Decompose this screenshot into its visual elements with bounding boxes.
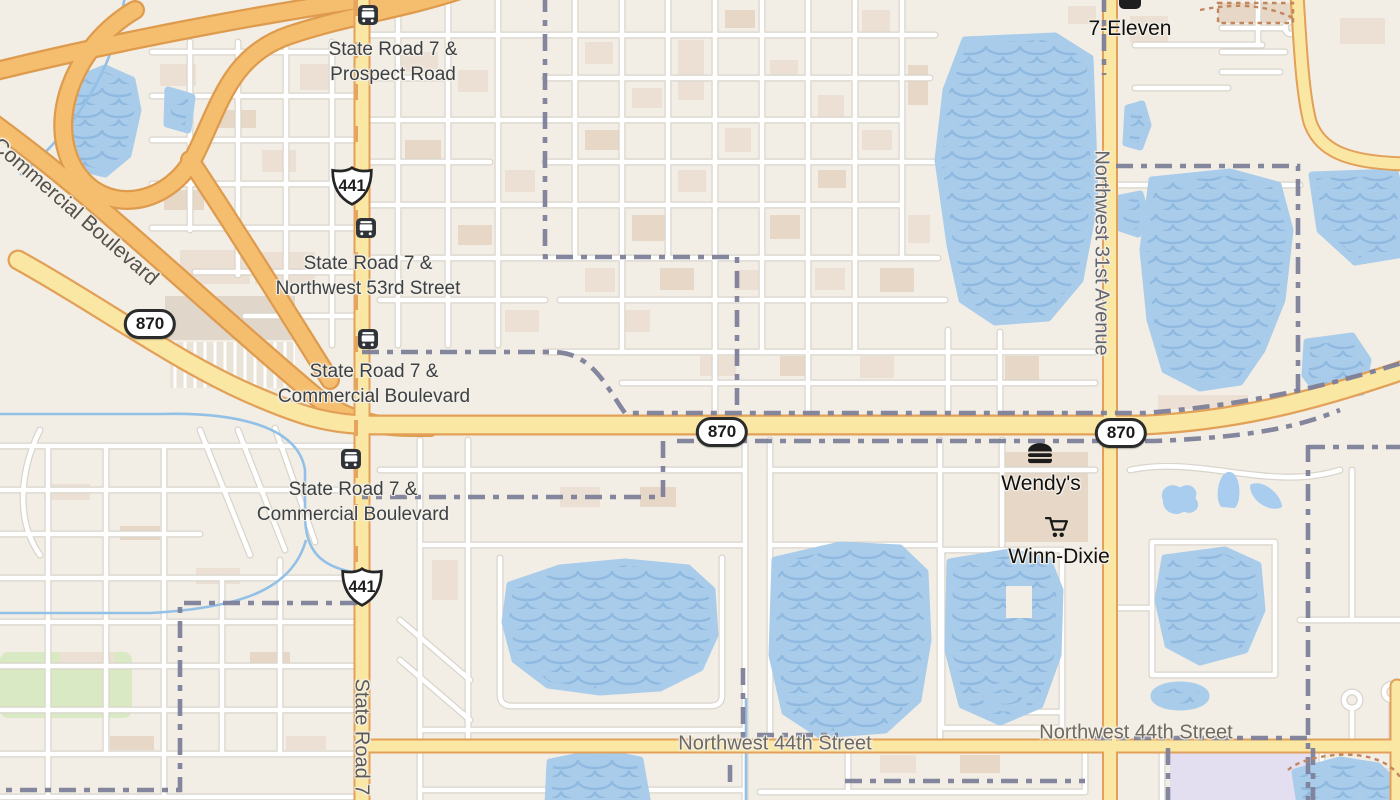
map-canvas[interactable]: State Road 7 & Prospect Road State Road … <box>0 0 1400 800</box>
us-441-shield: 441 <box>339 566 385 608</box>
transit-stop-line2: Commercial Boulevard <box>257 502 449 527</box>
bus-transit-icon[interactable] <box>358 329 379 350</box>
transit-stop-label[interactable]: State Road 7 & Prospect Road <box>329 37 458 87</box>
shield-number: 870 <box>708 422 736 441</box>
street-label-nw-31st-avenue: Northwest 31st Avenue <box>1090 150 1113 355</box>
bus-transit-icon[interactable] <box>356 218 377 239</box>
us-441-shield: 441 <box>329 165 375 207</box>
bus-transit-icon[interactable] <box>358 5 379 26</box>
street-label-nw-44th-street: Northwest 44th Street <box>1039 722 1232 745</box>
transit-stop-label[interactable]: State Road 7 & Northwest 53rd Street <box>276 251 461 301</box>
fl-870-shield: 870 <box>124 309 176 339</box>
transit-stop-line2: Prospect Road <box>329 62 458 87</box>
poi-label-winn-dixie[interactable]: Winn-Dixie <box>1008 545 1110 569</box>
fl-870-shield: 870 <box>1095 418 1147 448</box>
transit-stop-line1: State Road 7 & <box>329 37 458 62</box>
svg-text:441: 441 <box>338 177 365 195</box>
transit-stop-line2: Northwest 53rd Street <box>276 276 461 301</box>
bus-transit-icon[interactable] <box>341 449 362 470</box>
transit-stop-line1: State Road 7 & <box>276 251 461 276</box>
transit-stop-label[interactable]: State Road 7 & Commercial Boulevard <box>257 477 449 527</box>
street-label-nw-44th-street: Northwest 44th Street <box>678 733 871 756</box>
poi-label-wendys[interactable]: Wendy's <box>1001 472 1081 496</box>
poi-label-7-eleven[interactable]: 7-Eleven <box>1089 17 1172 41</box>
fl-870-shield: 870 <box>696 417 748 447</box>
shield-number: 870 <box>1107 423 1135 442</box>
convenience-store-icon[interactable] <box>1119 0 1141 9</box>
shopping-cart-icon[interactable] <box>1045 516 1070 539</box>
svg-text:441: 441 <box>348 578 375 596</box>
shield-number: 870 <box>136 314 164 333</box>
burger-icon[interactable] <box>1027 442 1054 464</box>
map-graphics <box>0 0 1400 800</box>
transit-stop-line1: State Road 7 & <box>278 359 470 384</box>
transit-stop-line1: State Road 7 & <box>257 477 449 502</box>
transit-stop-label[interactable]: State Road 7 & Commercial Boulevard <box>278 359 470 409</box>
transit-stop-line2: Commercial Boulevard <box>278 384 470 409</box>
street-label-state-road-7: State Road 7 <box>350 679 373 796</box>
